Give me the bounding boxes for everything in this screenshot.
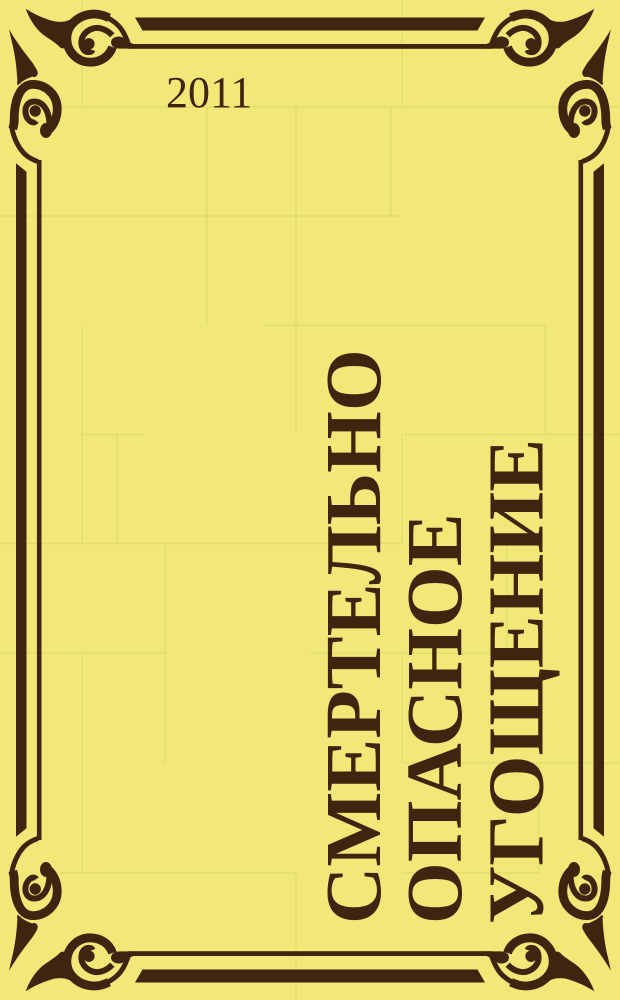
svg-text:2011: 2011 xyxy=(166,68,252,117)
svg-text:УГОЩЕНИЕ: УГОЩЕНИЕ xyxy=(473,439,561,924)
svg-text:СМЕРТЕЛЬНО: СМЕРТЕЛЬНО xyxy=(310,349,398,924)
svg-text:ОПАСНОЕ: ОПАСНОЕ xyxy=(391,513,479,924)
